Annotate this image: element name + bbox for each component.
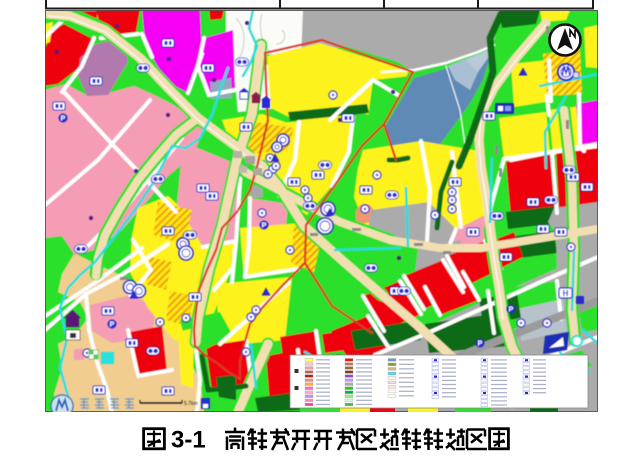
svg-text:H: H xyxy=(563,289,569,298)
svg-text:3-1: 3-1 xyxy=(171,427,206,454)
svg-text:P: P xyxy=(478,341,483,348)
svg-text:P: P xyxy=(509,307,514,314)
svg-text:P: P xyxy=(262,223,267,230)
svg-text:P: P xyxy=(61,116,66,123)
svg-text:5.7km: 5.7km xyxy=(184,401,198,407)
svg-text:P: P xyxy=(110,322,115,329)
